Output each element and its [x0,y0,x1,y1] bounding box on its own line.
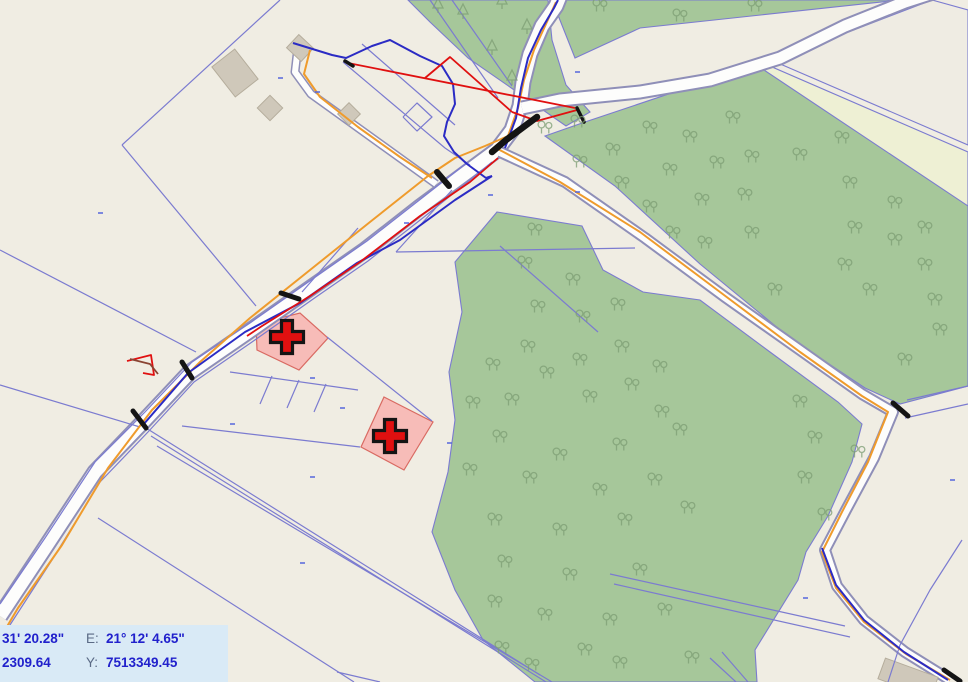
y-coordinate-label: Y: [86,655,106,670]
coordinate-row-x-y: 2309.64 Y: 7513349.45 [2,655,228,679]
longitude-label: E: [86,631,106,646]
latitude-fragment: 31' 20.28" [2,631,86,646]
x-coordinate-fragment: 2309.64 [2,655,86,670]
y-coordinate-value: 7513349.45 [106,655,228,670]
map-viewport: 31' 20.28" E: 21° 12' 4.65" 2309.64 Y: 7… [0,0,968,682]
coordinate-row-lat-lon: 31' 20.28" E: 21° 12' 4.65" [2,631,228,655]
longitude-value: 21° 12' 4.65" [106,631,228,646]
coordinate-status-panel: 31' 20.28" E: 21° 12' 4.65" 2309.64 Y: 7… [0,625,228,682]
map-canvas[interactable] [0,0,968,682]
